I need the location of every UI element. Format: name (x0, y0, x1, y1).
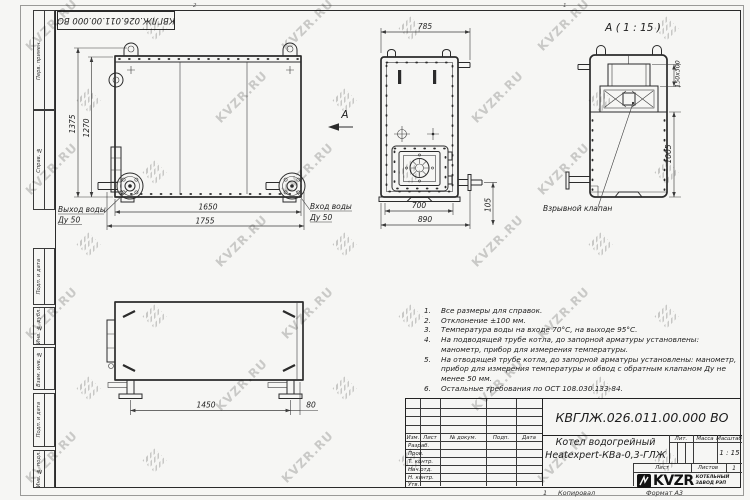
sidecol-label: Справ. № (36, 147, 42, 173)
tb-listov-label: Листов (698, 465, 718, 471)
zone-label: 2 (193, 3, 197, 9)
tb-header-data: Дата (522, 435, 536, 441)
sidecol-sprav-n: Справ. № (33, 110, 55, 210)
note-item: 2.Отклонение ±100 мм. (424, 316, 740, 326)
note-item: 3.Температура воды на входе 70°С, на вых… (424, 325, 740, 335)
zone-label: 1 (563, 3, 567, 9)
note-number: 5. (424, 355, 441, 384)
copied-label: Копировал (558, 489, 595, 497)
note-number: 2. (424, 316, 441, 326)
sidecol-perv-primen: Перв. примен. (33, 10, 55, 110)
tb-lit-label: Лит. (675, 436, 687, 442)
tb-row-razrab: Разраб. (408, 443, 429, 449)
tb-row-utv: Утв. (408, 482, 419, 488)
note-text: На подводящей трубе котла, до запорной а… (441, 335, 740, 354)
note-item: 1.Все размеры для справок. (424, 306, 740, 316)
copied-number: 1 (543, 489, 547, 497)
sidecol-label: Инв. № дубл. (36, 308, 42, 344)
tb-header-podp: Подп. (493, 435, 509, 441)
note-text: Все размеры для справок. (441, 306, 740, 316)
company-name: КОТЕЛЬНЫЙ ЗАВОД РЭП (696, 475, 730, 486)
sidecol-label: Подп. и дата (36, 259, 42, 294)
note-item: 5.На отводящей трубе котла, до запорной … (424, 355, 740, 384)
sidecol-inv-dubl: Инв. № дубл. (33, 307, 55, 345)
tb-scale-value: 1 : 15 (717, 442, 742, 463)
company-logo: KVZR КОТЕЛЬНЫЙ ЗАВОД РЭП (633, 472, 742, 489)
tb-product-name-line2: Heatexpert-КВа-0,3-ГЛЖ (542, 450, 669, 463)
note-text: Отклонение ±100 мм. (441, 316, 740, 326)
sidecol-label: Инв. № подл. (36, 451, 42, 487)
note-number: 4. (424, 335, 441, 354)
sidecol-vzam-inv: Взам. инв. № (33, 347, 55, 390)
tb-header-list: Лист (423, 435, 437, 441)
tb-product-name: Котел водогрейный Heatexpert-КВа-0,3-ГЛЖ (542, 437, 669, 463)
doc-number-rotated: КВГЛЖ.026.011.00.000 ВО (57, 16, 175, 26)
format-label: Формат А3 (646, 489, 683, 497)
note-item: 6.Остальные требования по ОСТ 108.030.13… (424, 384, 740, 394)
tb-row-tkontr: Т. контр. (408, 459, 433, 465)
note-item: 4.На подводящей трубе котла, до запорной… (424, 335, 740, 354)
sidecol-label: Взам. инв. № (36, 351, 42, 387)
sidecol-label: Перв. примен. (36, 41, 42, 80)
tb-doc-number: КВГЛЖ.026.011.00.000 ВО (542, 399, 742, 435)
note-text: Остальные требования по ОСТ 108.030.133-… (441, 384, 740, 394)
drawing-sheet: 2 1 КВГЛЖ.026.011.00.000 ВО Перв. примен… (0, 0, 750, 500)
tb-listov-value: 1 (732, 465, 736, 472)
sidecol-label: Подп. и дата (36, 402, 42, 437)
note-number: 1. (424, 306, 441, 316)
sidecol-podp-data-1: Подп. и дата (33, 248, 55, 305)
title-block: Изм. Лист № докум. Подп. Дата Разраб. Пр… (405, 398, 741, 488)
tb-massa-label: Масса (696, 436, 713, 442)
tb-list-label: Лист (655, 465, 669, 471)
kvzr-logo-text: KVZR (653, 474, 694, 488)
tb-header-ndokum: № докум. (450, 435, 477, 441)
kvzr-logo-icon (637, 474, 651, 488)
notes-list: 1.Все размеры для справок. 2.Отклонение … (424, 306, 740, 393)
tb-row-prov: Пров. (408, 451, 424, 457)
note-text: На отводящей трубе котла, до запорной ар… (441, 355, 740, 384)
tb-row-nachotd: Нач.отд. (408, 467, 432, 473)
tb-row-nkontr: Н. контр. (408, 475, 434, 481)
note-number: 6. (424, 384, 441, 394)
tb-header-izm: Изм. (407, 435, 420, 441)
note-number: 3. (424, 325, 441, 335)
company-name-line2: ЗАВОД РЭП (696, 481, 730, 486)
note-text: Температура воды на входе 70°С, на выход… (441, 325, 740, 335)
tb-product-name-line1: Котел водогрейный (542, 437, 669, 450)
doc-number-stamp-rotated: КВГЛЖ.026.011.00.000 ВО (57, 11, 175, 30)
sidecol-inv-podl: Инв. № подл. (33, 450, 55, 488)
sidecol-podp-data-2: Подп. и дата (33, 393, 55, 447)
company-name-line1: КОТЕЛЬНЫЙ (696, 475, 730, 480)
